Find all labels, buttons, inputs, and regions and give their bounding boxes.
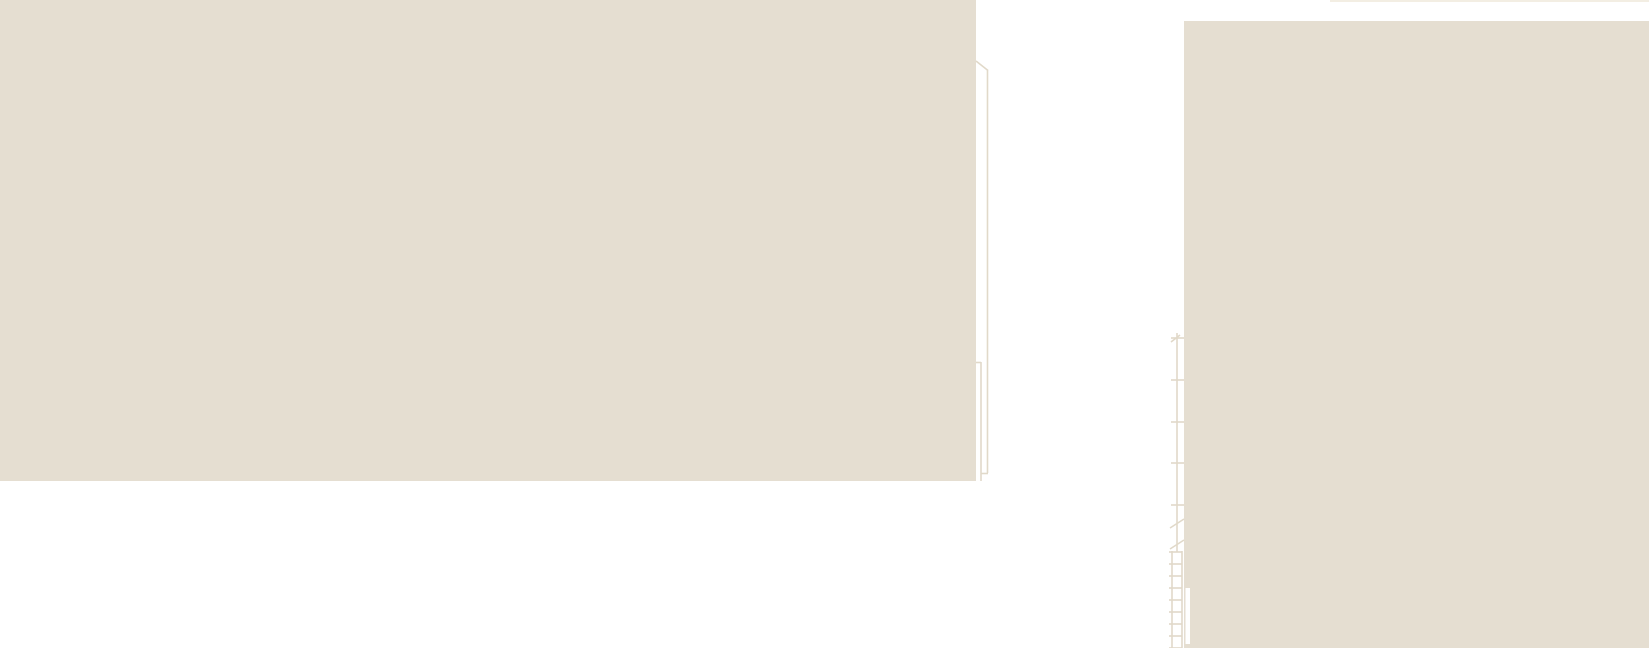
left-building-mass	[0, 0, 976, 481]
right-building-mass	[1184, 21, 1649, 648]
top-edge-faint-line	[1330, 0, 1649, 2]
elevation-drawing	[0, 0, 1649, 648]
left-parapet-step-diagonal	[976, 61, 988, 71]
elevation-drawing-canvas	[0, 0, 1649, 648]
right-mass-left-groove	[1186, 588, 1191, 644]
